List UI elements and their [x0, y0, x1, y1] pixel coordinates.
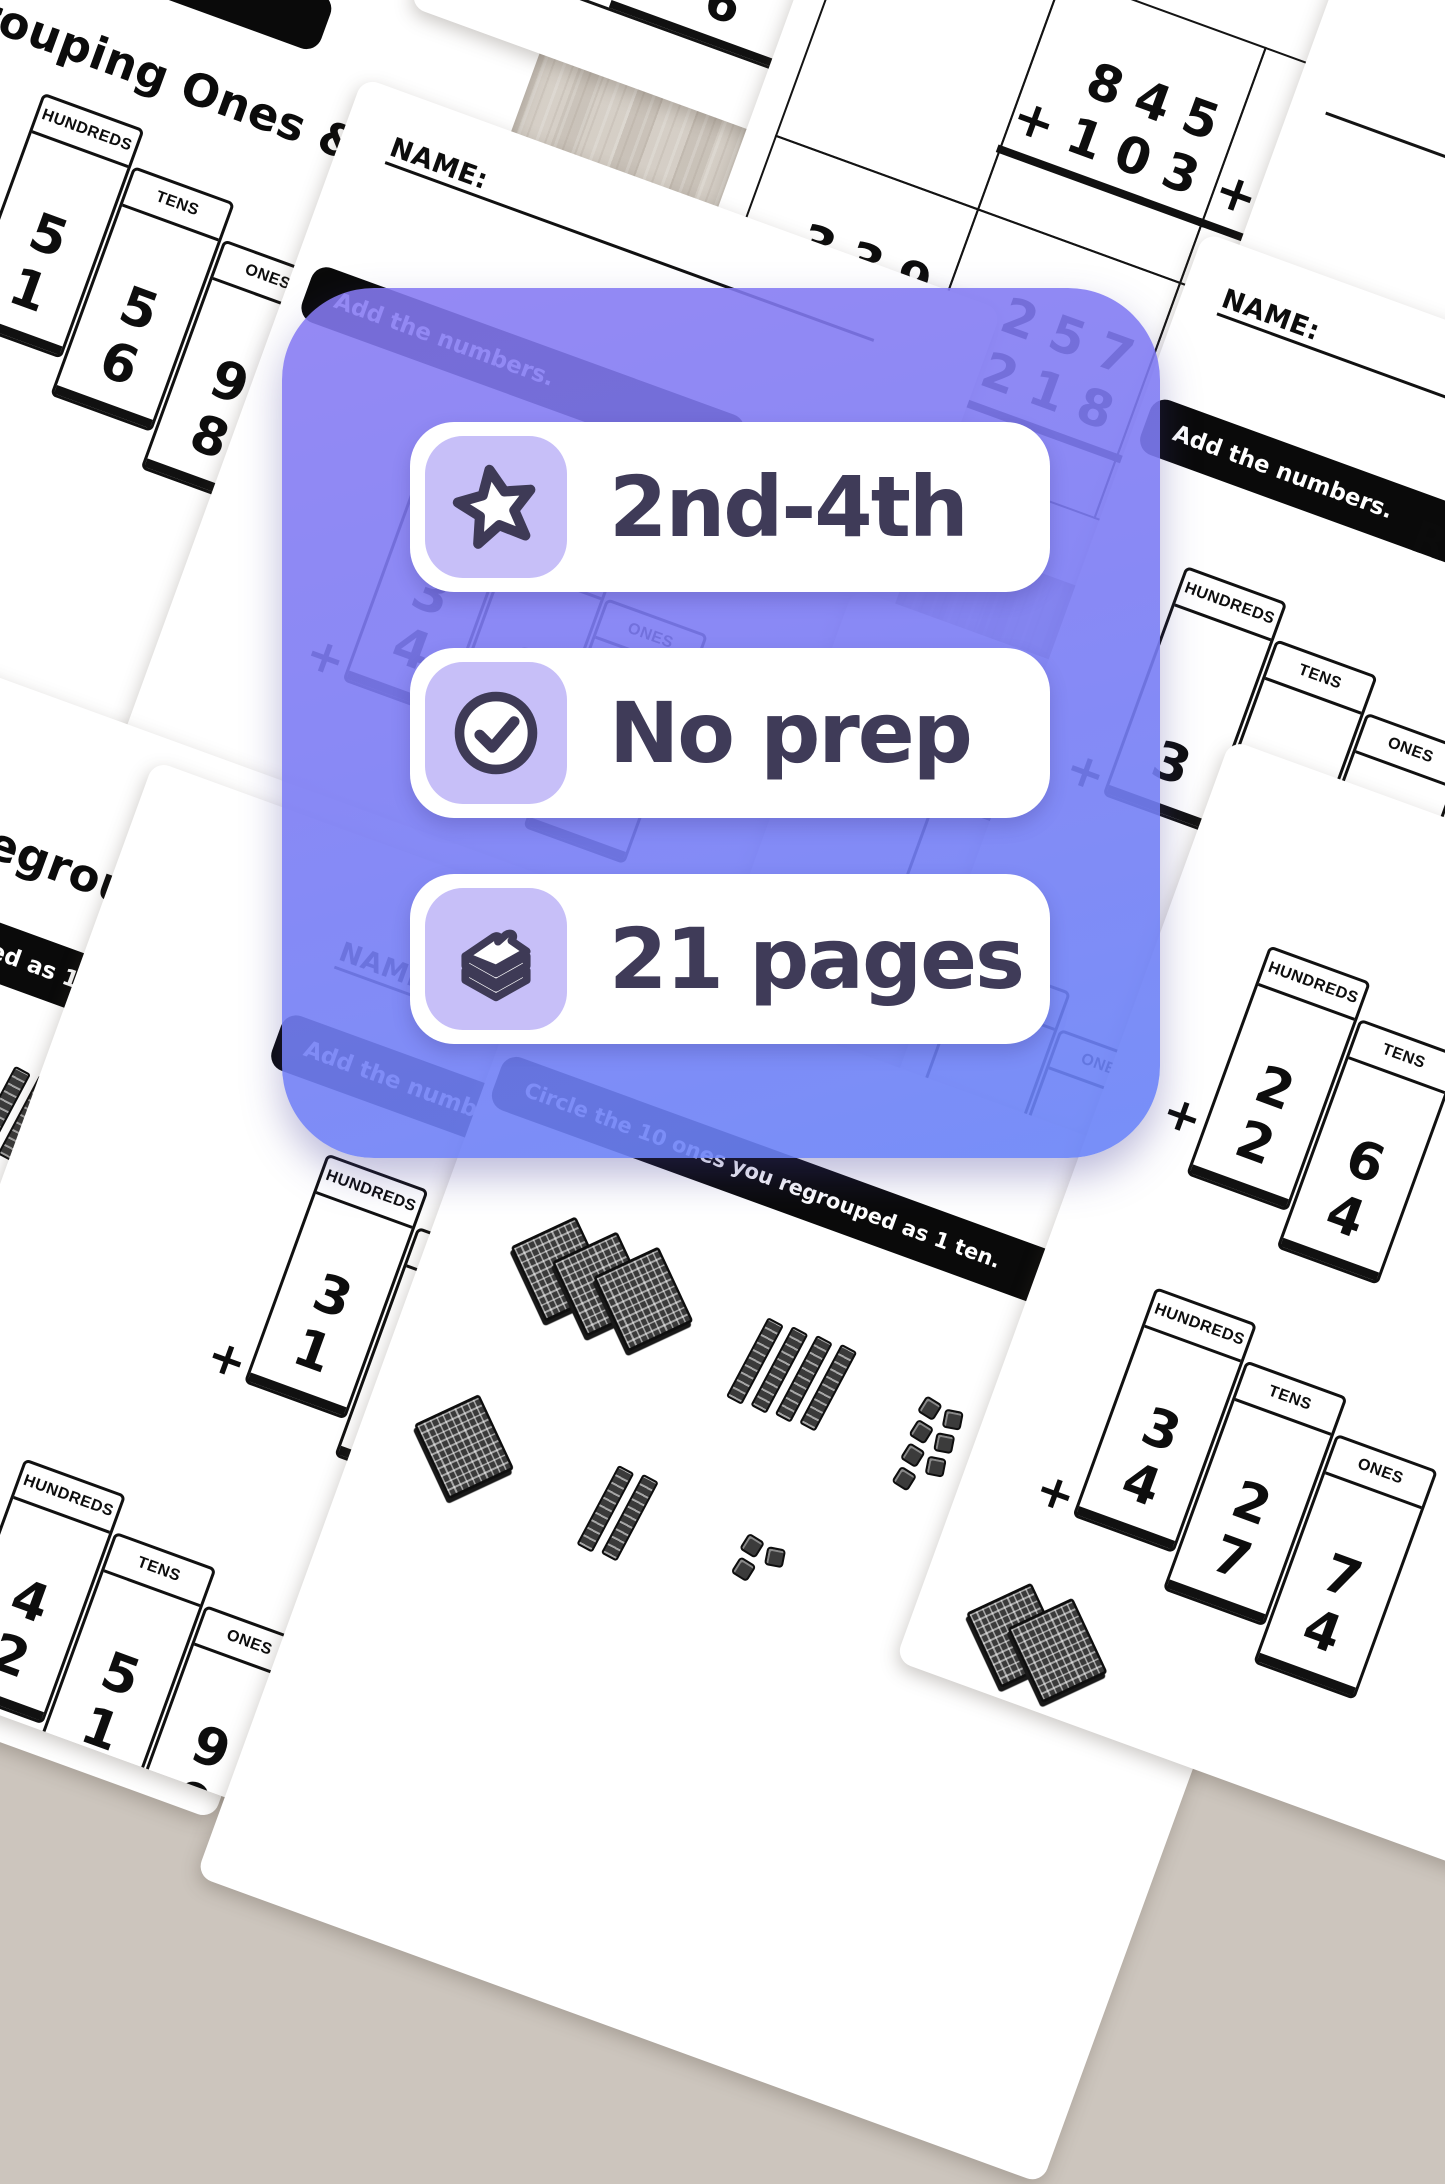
badge-page-count: 21 pages: [410, 874, 1050, 1044]
check-circle-icon: [425, 662, 567, 804]
base-ten-hundreds: [503, 1211, 701, 1356]
badge-grade-level: 2nd-4th: [410, 422, 1050, 592]
base-ten-ones: [891, 1396, 968, 1503]
badge-label: No prep: [609, 684, 971, 782]
digit: 1: [286, 1318, 340, 1385]
grid-line: [1325, 0, 1445, 258]
worksheet-banner: Add the numbers.: [1136, 395, 1445, 600]
base-ten-hundreds: [406, 1389, 521, 1504]
digit: 4: [1295, 1598, 1349, 1665]
place-value-table: + HUNDREDS 22 TENS 64: [1176, 946, 1445, 1285]
pages-stack-icon: [425, 888, 567, 1030]
digit: 2: [1228, 1110, 1282, 1177]
digit: 4: [1114, 1451, 1168, 1518]
digit: 4: [1318, 1183, 1372, 1250]
digit: 1: [2, 257, 56, 324]
base-ten-ones: [730, 1534, 790, 1594]
star-icon: [425, 436, 567, 578]
badge-label: 21 pages: [609, 910, 1023, 1008]
digit: 6: [92, 330, 146, 397]
base-ten-rods: [731, 1316, 860, 1436]
name-label: NAME:: [386, 132, 506, 201]
badge-no-prep: No prep: [410, 648, 1050, 818]
digit: 7: [1205, 1525, 1259, 1592]
overlay-card: 2nd-4th No prep 21 pages: [282, 288, 1160, 1158]
badge-label: 2nd-4th: [609, 458, 967, 556]
digit: 2: [0, 1623, 37, 1690]
name-label: NAME:: [1217, 283, 1337, 352]
base-ten-rods: [582, 1463, 662, 1565]
